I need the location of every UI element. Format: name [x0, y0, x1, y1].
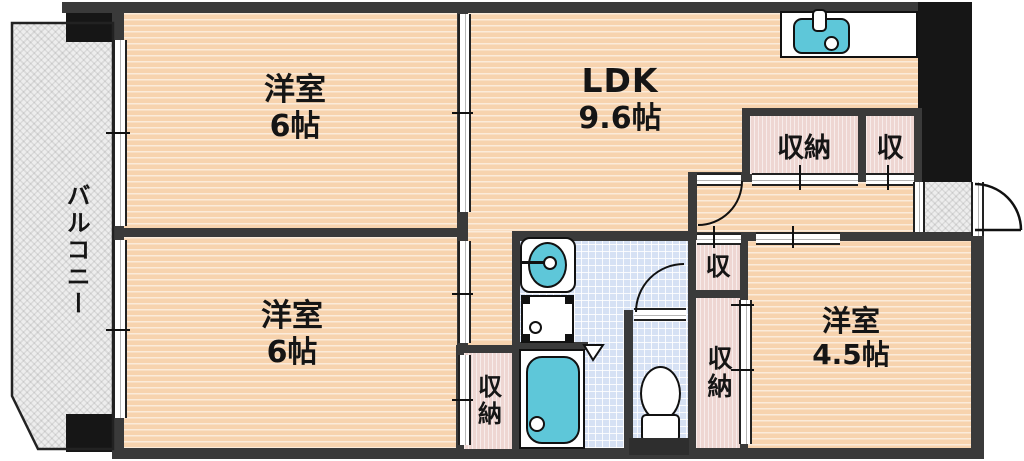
room-size: 9.6帖	[520, 101, 720, 136]
sliding-door-room-right-entry	[756, 232, 840, 245]
washbasin-knob-icon	[543, 256, 557, 270]
sliding-door-extension	[458, 241, 471, 343]
closet-hall-label: 収	[705, 247, 730, 283]
wall-bottom	[112, 448, 984, 459]
ldk-extension-floor	[468, 231, 512, 347]
pan-corner-mark	[565, 334, 572, 341]
pan-corner-mark	[565, 297, 572, 304]
room-right-label: 洋室 4.5帖	[751, 304, 951, 371]
entry-door-panel	[971, 182, 984, 236]
toilet-threshold	[629, 438, 689, 455]
wall-bath-toilet	[624, 310, 633, 456]
room-size: 6帖	[192, 335, 392, 370]
genkan-step	[913, 182, 925, 232]
sliding-door-closet-room-bottom	[458, 355, 471, 445]
sliding-door-closet-ldk	[752, 173, 858, 186]
pillar-right	[918, 2, 972, 182]
hallway-floor	[697, 182, 914, 232]
sliding-door-closet-hall	[697, 233, 741, 245]
room-top-left-label: 洋室 6帖	[195, 72, 395, 144]
sliding-door-ldk-room	[458, 14, 471, 212]
closet-ldk-small-label: 収	[877, 126, 904, 165]
sliding-door-closet-ldk-small	[866, 173, 914, 186]
closet-hall-large: 収納	[696, 298, 740, 448]
wall-hall-left	[688, 172, 697, 240]
door-opening-ldk-hall	[697, 173, 741, 186]
ldk-label: LDK 9.6帖	[520, 62, 720, 136]
bathtub-drain-icon	[529, 416, 545, 432]
genkan-floor	[920, 182, 971, 232]
balcony-pillar-bottom	[66, 414, 118, 452]
closet-ldk-label: 収納	[777, 126, 831, 165]
closet-hall: 収	[696, 240, 740, 290]
floorplan-canvas: 収納 収 収 収納 収納 洋室	[0, 0, 1024, 461]
room-name: 洋室	[751, 304, 951, 338]
closet-room-bottom-label: 収納	[471, 374, 506, 428]
room-name: 洋室	[192, 298, 392, 335]
closet-room-bottom: 収納	[464, 353, 512, 449]
pan-drain-icon	[529, 321, 542, 334]
room-size: 4.5帖	[751, 338, 951, 371]
window-bottom-left-room	[113, 240, 127, 418]
room-size: 6帖	[195, 109, 395, 144]
toilet-bowl-icon	[640, 366, 681, 421]
window-top-left-room	[113, 40, 127, 226]
closet-ldk: 収納	[750, 116, 858, 174]
closet-ldk-small: 収	[866, 116, 914, 174]
wall-between-left-rooms	[112, 228, 466, 237]
room-name: 洋室	[195, 72, 395, 109]
pan-corner-mark	[523, 297, 530, 304]
wall-right	[971, 236, 984, 459]
pan-corner-mark	[523, 334, 530, 341]
kitchen-faucet-icon	[812, 9, 827, 32]
toilet-door-leaf	[634, 308, 686, 321]
balcony-label: バルコニー	[58, 138, 94, 363]
washing-machine-pan-icon	[521, 295, 574, 343]
kitchen-drain-icon	[824, 36, 839, 51]
closet-hall-large-label: 収納	[700, 345, 736, 401]
room-name: LDK	[520, 62, 720, 101]
wall-washroom-left	[512, 241, 520, 353]
room-bottom-left-label: 洋室 6帖	[192, 298, 392, 370]
